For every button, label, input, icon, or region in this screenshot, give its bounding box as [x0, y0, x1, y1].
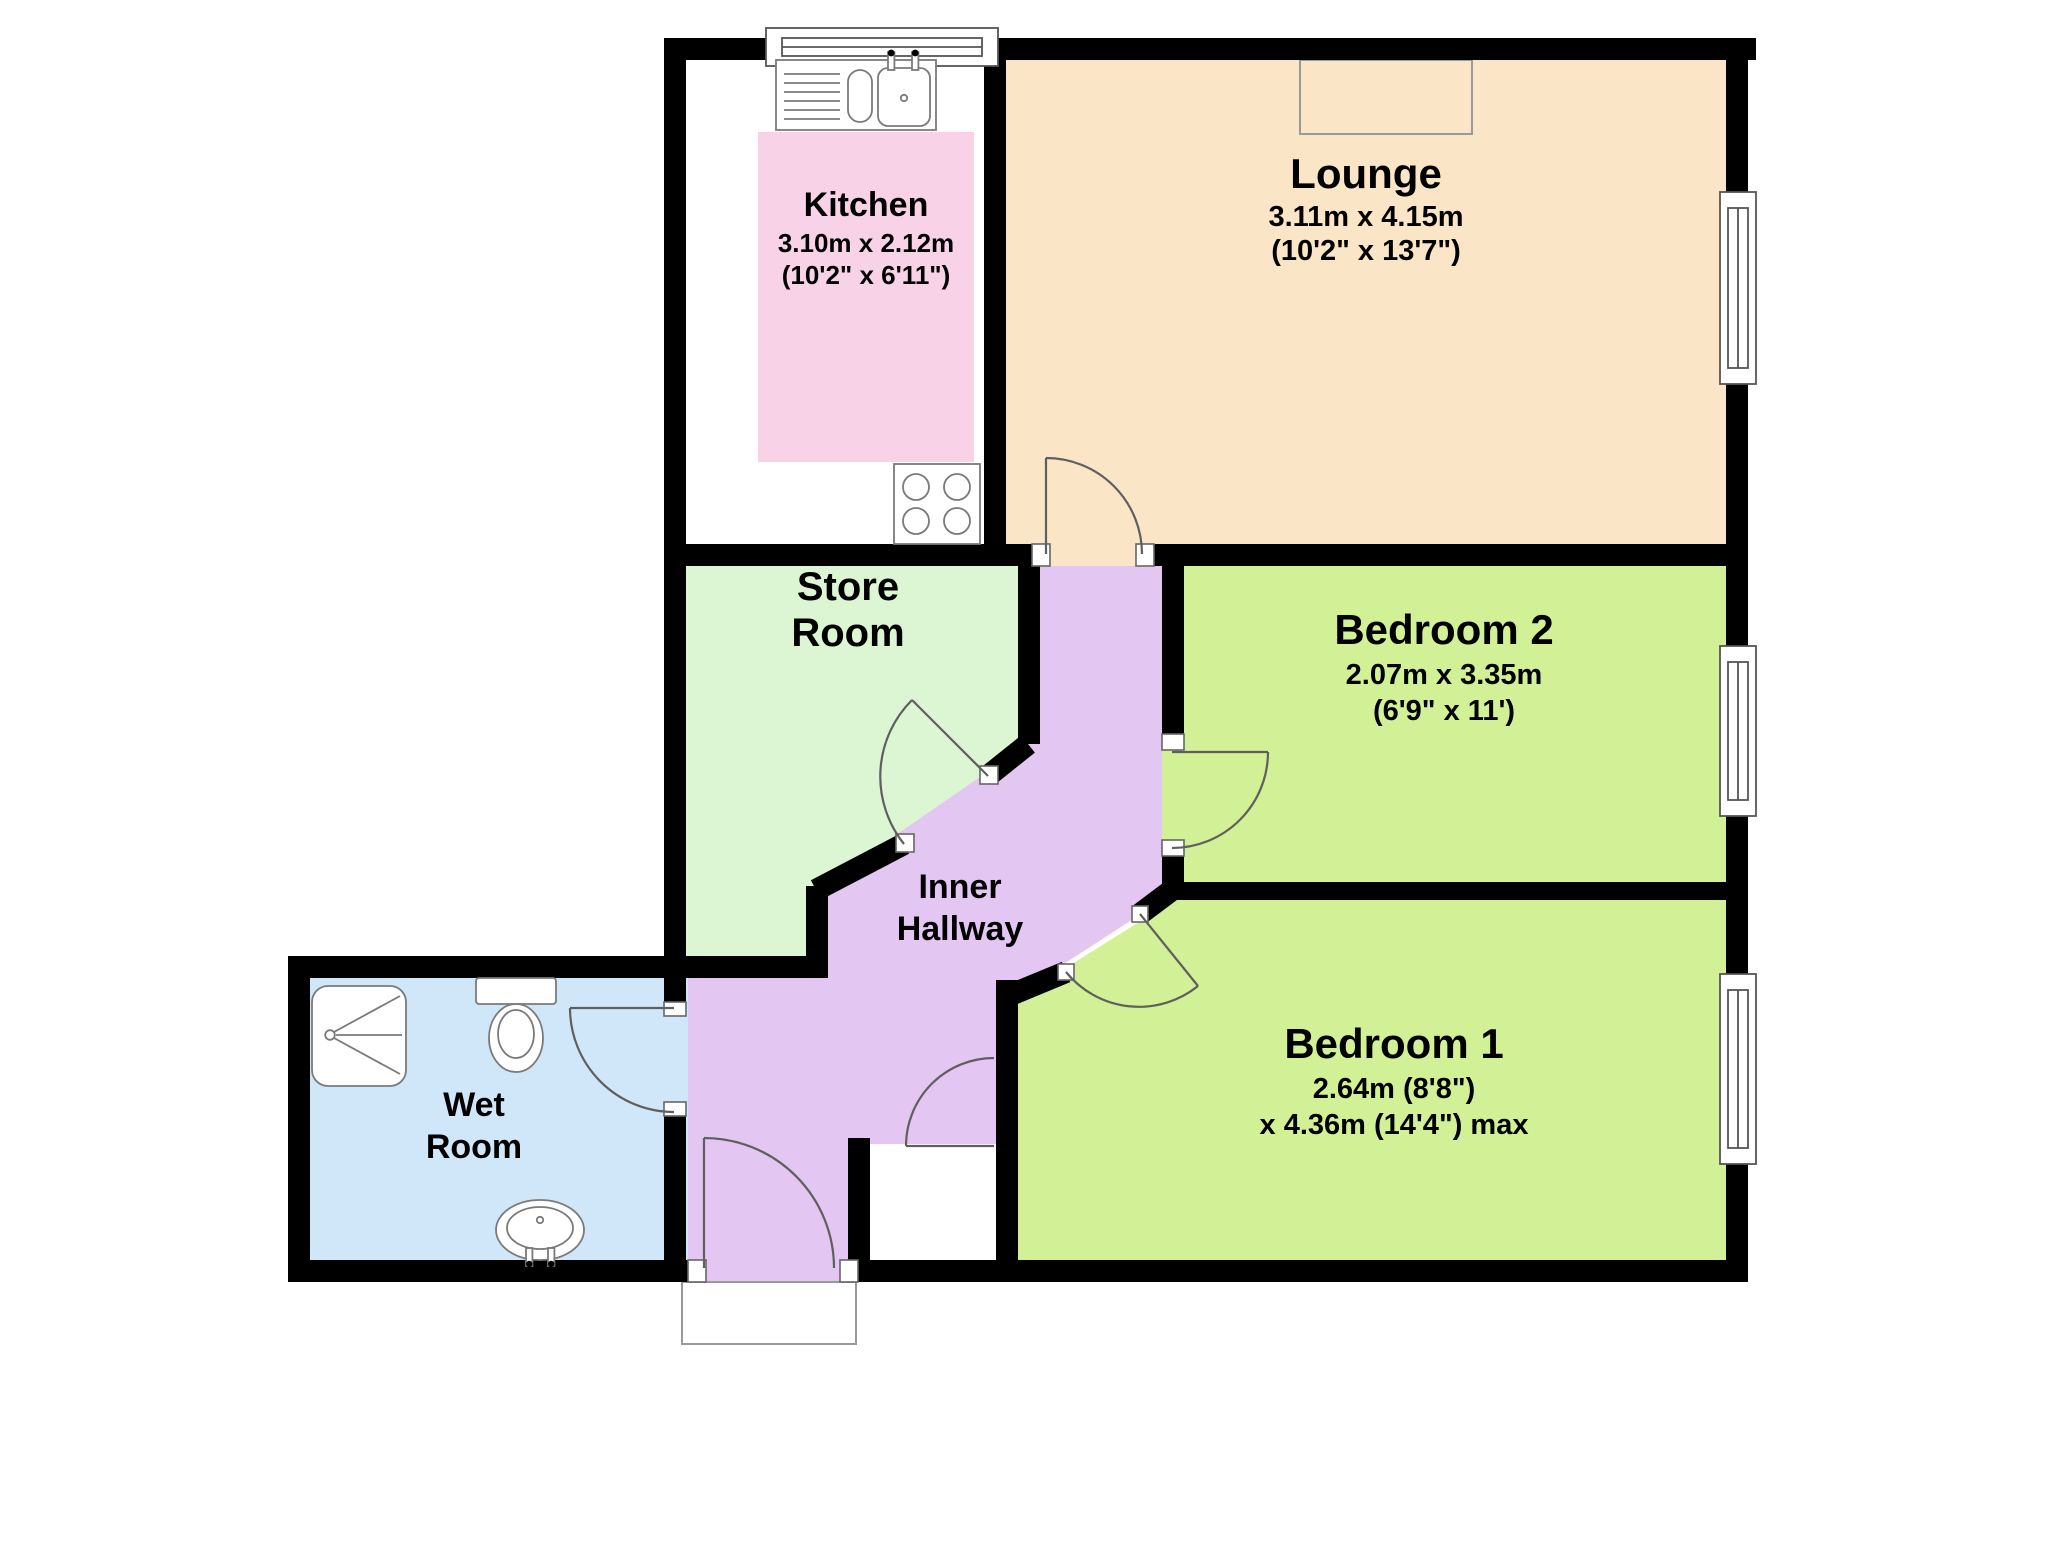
label-kitchen-metric: 3.10m x 2.12m: [778, 228, 954, 258]
label-lounge-metric: 3.11m x 4.15m: [1268, 201, 1463, 233]
label-bedroom1-name: Bedroom 1: [1284, 1020, 1503, 1067]
wall-bottom-right: [840, 1260, 1748, 1282]
label-wet-line1: Wet: [443, 1086, 505, 1124]
label-bedroom2-name: Bedroom 2: [1334, 606, 1553, 653]
sink-drainer-bowl: [848, 70, 872, 122]
window-lounge: [1720, 192, 1756, 384]
wall-store-bottom-wet-top: [288, 956, 828, 978]
wall-wet-left: [288, 956, 310, 1282]
jamb: [980, 766, 998, 784]
floorplan-canvas: Kitchen 3.10m x 2.12m (10'2" x 6'11") Lo…: [0, 0, 2048, 1556]
wall-left-upper: [664, 38, 686, 978]
wall-kitchen-bottom: [664, 544, 1038, 566]
wall-lounge-bottom: [1152, 544, 1748, 566]
label-bedroom1-dims2: x 4.36m (14'4") max: [1260, 1109, 1529, 1141]
wall-bottom-left: [288, 1260, 706, 1282]
wall-kitchen-lounge: [984, 60, 1006, 566]
room-lounge: [1006, 60, 1726, 566]
label-store-line2: Room: [791, 611, 904, 655]
label-kitchen-imperial: (10'2" x 6'11"): [782, 260, 951, 290]
jamb: [1032, 544, 1050, 566]
label-lounge-imperial: (10'2" x 13'7"): [1271, 235, 1461, 267]
label-kitchen-name: Kitchen: [804, 186, 929, 224]
entrance-porch: [682, 1282, 856, 1344]
label-hallway-line1: Inner: [918, 868, 1001, 906]
label-wet-line2: Room: [426, 1128, 522, 1166]
label-store-line1: Store: [797, 565, 899, 609]
wall-wet-right-lower: [664, 1114, 686, 1260]
jamb: [1136, 544, 1154, 566]
window-bedroom-1: [1720, 974, 1756, 1164]
label-hallway-line2: Hallway: [897, 910, 1024, 948]
label-bedroom1-dims1: 2.64m (8'8"): [1313, 1073, 1476, 1105]
room-kitchen: [758, 132, 974, 462]
shower-tray: [312, 986, 406, 1086]
window-bedroom-2: [1720, 646, 1756, 816]
jamb: [664, 1102, 686, 1116]
label-bedroom2-imperial: (6'9" x 11'): [1373, 695, 1515, 727]
wall-hall-bed2: [1162, 566, 1184, 744]
kitchen-hob: [894, 464, 980, 544]
cupboard-recess: [870, 1144, 996, 1260]
label-lounge-name: Lounge: [1290, 150, 1442, 197]
label-bedroom2-metric: 2.07m x 3.35m: [1346, 659, 1543, 691]
wall-hall-bed1: [996, 980, 1018, 1282]
wall-store-hall: [1018, 566, 1040, 744]
jamb: [840, 1260, 858, 1282]
kitchen-sink-unit: [776, 50, 936, 130]
wall-bedroom-divider: [1162, 882, 1748, 900]
floorplan-svg: Kitchen 3.10m x 2.12m (10'2" x 6'11") Lo…: [0, 0, 2048, 1556]
jamb: [1162, 734, 1184, 750]
